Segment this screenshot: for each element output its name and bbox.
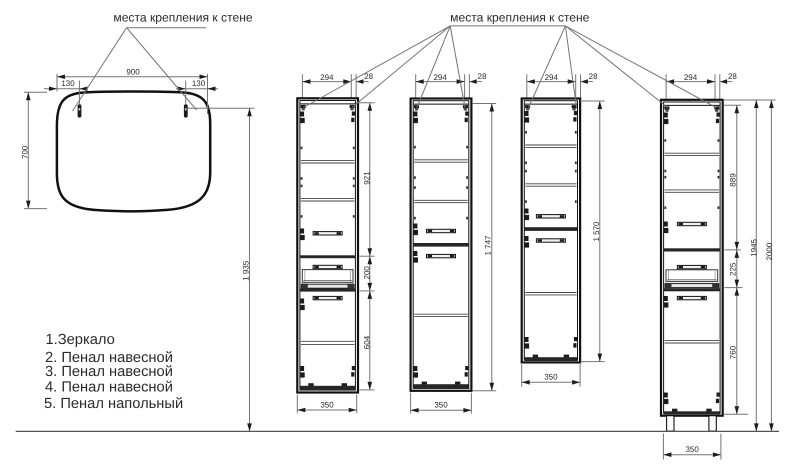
svg-text:294: 294 (320, 73, 334, 82)
svg-text:900: 900 (126, 67, 140, 76)
svg-text:294: 294 (684, 73, 698, 82)
svg-text:1 747: 1 747 (484, 235, 493, 256)
svg-text:3. Пенал навесной: 3. Пенал навесной (45, 364, 173, 380)
svg-text:28: 28 (589, 72, 598, 81)
svg-text:5. Пенал напольный: 5. Пенал напольный (44, 396, 183, 412)
svg-text:130: 130 (61, 79, 75, 88)
svg-text:350: 350 (434, 401, 448, 410)
svg-text:места крепления к стене: места крепления к стене (113, 11, 252, 25)
svg-text:1 570: 1 570 (592, 221, 601, 242)
svg-text:225: 225 (729, 262, 738, 276)
svg-text:350: 350 (320, 400, 334, 409)
svg-text:350: 350 (544, 373, 558, 382)
svg-text:294: 294 (545, 73, 559, 82)
svg-text:28: 28 (728, 72, 737, 81)
svg-text:1945: 1945 (750, 238, 759, 256)
svg-text:760: 760 (729, 345, 738, 359)
svg-text:200: 200 (362, 266, 371, 280)
svg-text:места крепления к стене: места крепления к стене (450, 11, 589, 25)
svg-text:2000: 2000 (765, 242, 774, 260)
svg-text:1 935: 1 935 (241, 260, 250, 281)
svg-text:700: 700 (20, 145, 29, 159)
svg-text:4. Пенал навесной: 4. Пенал навесной (45, 380, 173, 396)
svg-text:921: 921 (362, 171, 371, 185)
svg-text:604: 604 (362, 335, 371, 349)
svg-text:294: 294 (433, 73, 447, 82)
svg-text:1.Зеркало: 1.Зеркало (46, 332, 115, 348)
svg-text:130: 130 (192, 79, 206, 88)
svg-text:28: 28 (478, 72, 487, 81)
svg-text:350: 350 (685, 445, 699, 454)
svg-text:889: 889 (729, 173, 738, 187)
